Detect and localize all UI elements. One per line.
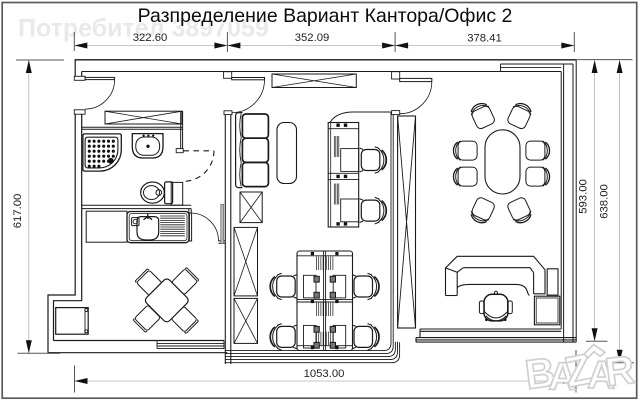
svg-text:322.60: 322.60 <box>133 32 168 44</box>
svg-text:Разпределение Вариант Кантора/: Разпределение Вариант Кантора/Офис 2 <box>138 5 513 27</box>
svg-text:617.00: 617.00 <box>12 194 24 229</box>
svg-text:352.09: 352.09 <box>295 32 330 44</box>
svg-text:1053.00: 1053.00 <box>304 368 345 380</box>
svg-text:R: R <box>603 348 637 395</box>
svg-text:638.00: 638.00 <box>599 184 611 219</box>
svg-text:378.41: 378.41 <box>467 33 502 45</box>
svg-text:593.00: 593.00 <box>578 179 590 214</box>
